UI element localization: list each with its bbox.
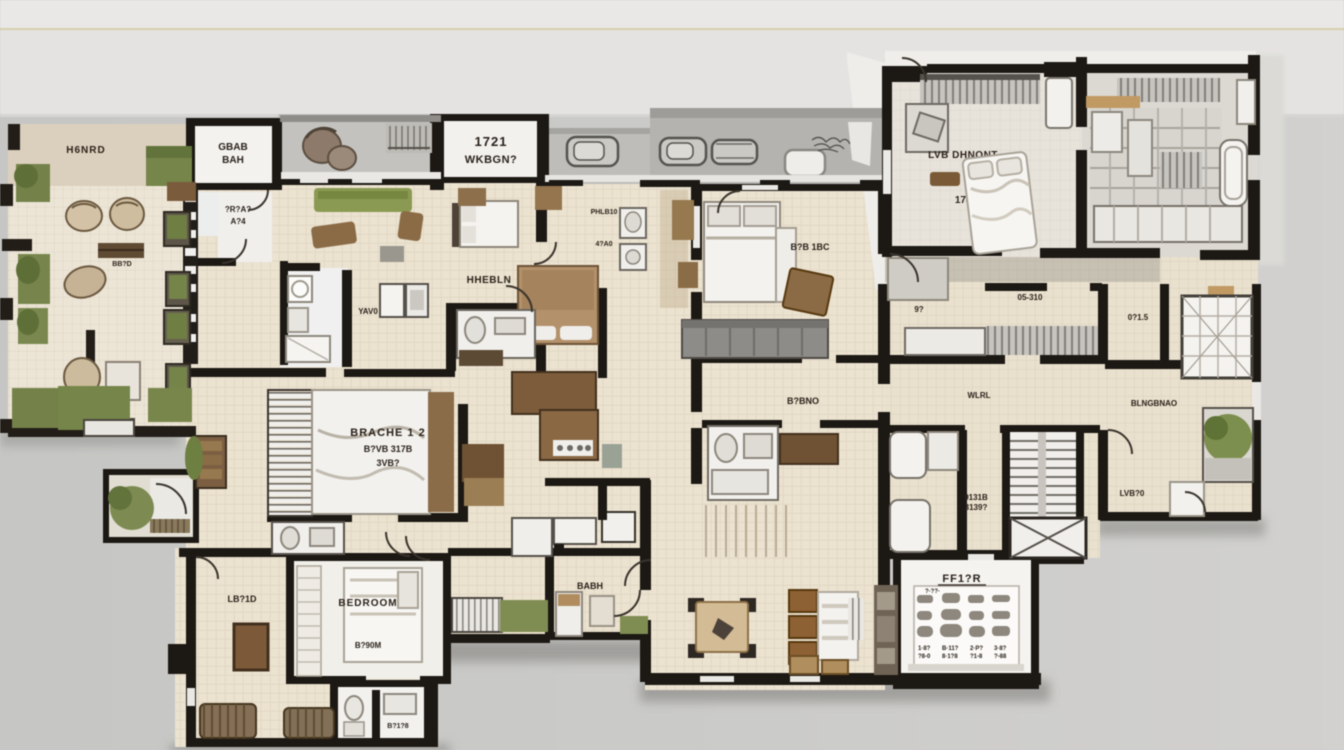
svg-text:BABH: BABH (577, 581, 603, 591)
svg-text:B?90M: B?90M (355, 641, 382, 650)
svg-text:FF1?R: FF1?R (942, 573, 981, 585)
svg-text:?8-0: ?8-0 (918, 654, 931, 660)
svg-text:1721: 1721 (475, 134, 508, 149)
svg-text:3139?: 3139? (965, 503, 988, 512)
svg-text:1·8?: 1·8? (918, 646, 931, 652)
svg-text:BLNGBNAO: BLNGBNAO (1131, 399, 1177, 408)
svg-text:WLRL: WLRL (967, 391, 990, 400)
svg-text:A?4: A?4 (230, 217, 246, 226)
svg-text:GBAB: GBAB (218, 142, 247, 153)
svg-text:B?BNO: B?BNO (787, 396, 819, 406)
svg-text:BAH: BAH (222, 155, 244, 166)
svg-text:B?VB 317B: B?VB 317B (364, 444, 413, 454)
svg-text:B?B 1BC: B?B 1BC (790, 242, 830, 252)
svg-text:WKBGN?: WKBGN? (465, 154, 518, 166)
svg-text:05-310: 05-310 (1018, 293, 1043, 302)
svg-text:BEDROOM: BEDROOM (338, 598, 397, 609)
svg-text:B?1?8: B?1?8 (387, 723, 409, 730)
svg-text:3·8?: 3·8? (994, 646, 1007, 652)
svg-text:PHLB10: PHLB10 (591, 209, 618, 216)
svg-text:9?: 9? (914, 305, 923, 314)
svg-text:2·P?: 2·P? (970, 646, 983, 652)
svg-text:YAV0: YAV0 (358, 307, 378, 316)
svg-text:H6NRD: H6NRD (66, 145, 105, 156)
svg-text:?1-8: ?1-8 (970, 654, 983, 660)
svg-text:BB?D: BB?D (112, 261, 131, 268)
svg-text:?·??·: ?·??· (925, 589, 940, 595)
svg-text:?-88: ?-88 (994, 654, 1007, 660)
svg-text:0?1.5: 0?1.5 (1128, 313, 1149, 322)
svg-text:B·11?: B·11? (942, 646, 959, 652)
svg-text:8·1?8: 8·1?8 (942, 654, 958, 660)
svg-text:LVB?0: LVB?0 (1120, 489, 1145, 498)
svg-text:HHEBLN: HHEBLN (467, 275, 512, 286)
svg-text:?R?A?: ?R?A? (225, 205, 251, 214)
svg-text:BRACHE 1 2: BRACHE 1 2 (350, 427, 425, 439)
svg-text:3VB?: 3VB? (376, 458, 399, 468)
svg-text:LB?1D: LB?1D (228, 594, 258, 604)
svg-text:4?A0: 4?A0 (595, 241, 612, 248)
svg-text:9131B: 9131B (964, 493, 988, 502)
